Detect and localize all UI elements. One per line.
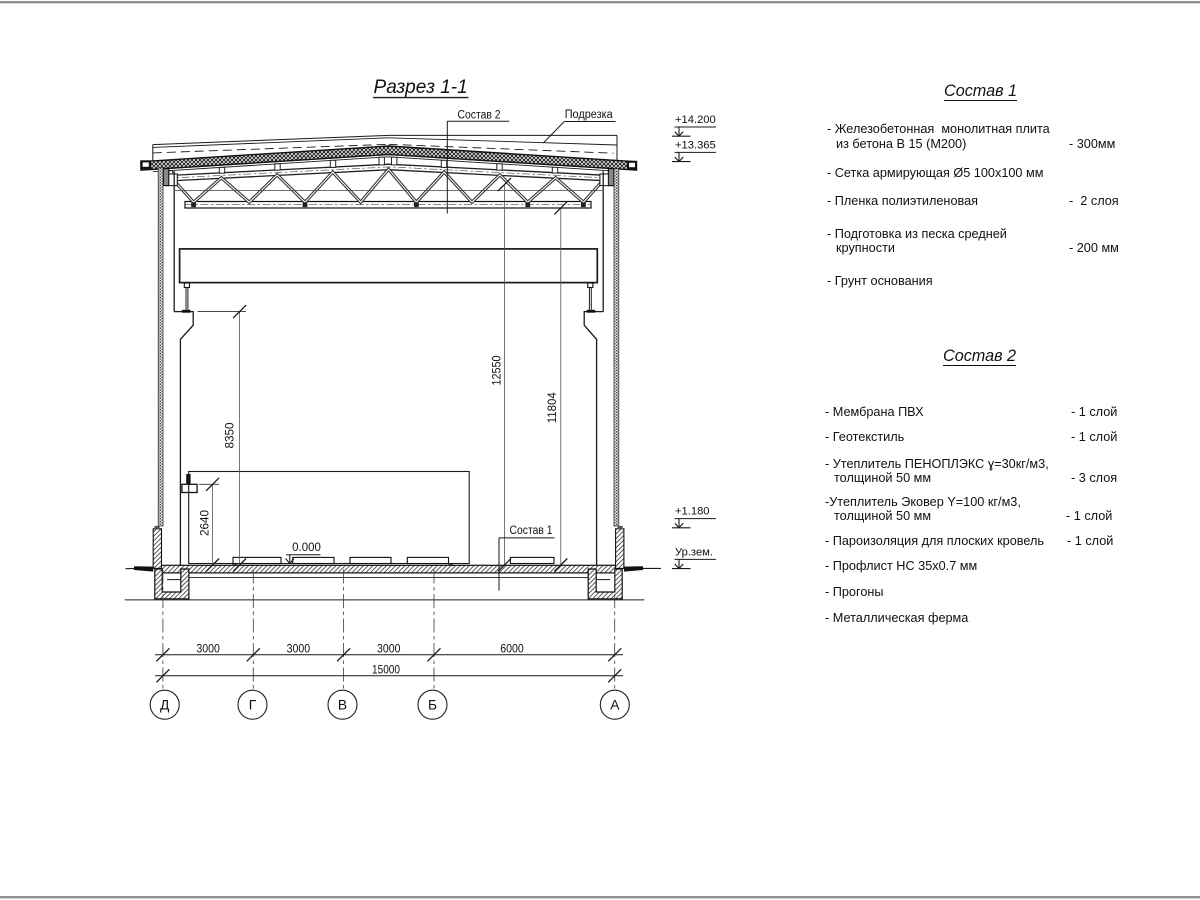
svg-text:3000: 3000	[196, 642, 220, 656]
svg-text:+1.180: +1.180	[675, 506, 710, 518]
svg-text:Ур.зем.: Ур.зем.	[675, 546, 713, 558]
svg-text:3000: 3000	[377, 642, 401, 656]
svg-text:Разрез 1-1: Разрез 1-1	[374, 77, 468, 98]
svg-text:Состав 1: Состав 1	[510, 525, 553, 537]
svg-text:Подрезка: Подрезка	[565, 109, 614, 121]
svg-text:8350: 8350	[223, 422, 237, 448]
svg-text:А: А	[610, 698, 620, 713]
svg-text:2640: 2640	[198, 510, 212, 536]
svg-text:+13.365: +13.365	[675, 139, 716, 151]
svg-text:12550: 12550	[490, 355, 504, 385]
svg-text:11804: 11804	[545, 392, 559, 423]
svg-text:Г: Г	[249, 698, 257, 713]
svg-text:+14.200: +14.200	[675, 114, 716, 126]
svg-text:15000: 15000	[372, 663, 400, 677]
svg-text:0.000: 0.000	[292, 542, 321, 554]
svg-text:Д: Д	[160, 698, 170, 713]
svg-text:Состав 2: Состав 2	[458, 109, 501, 121]
svg-text:6000: 6000	[500, 642, 524, 656]
svg-text:Б: Б	[428, 698, 437, 713]
svg-text:3000: 3000	[287, 642, 311, 656]
svg-text:В: В	[338, 698, 347, 713]
